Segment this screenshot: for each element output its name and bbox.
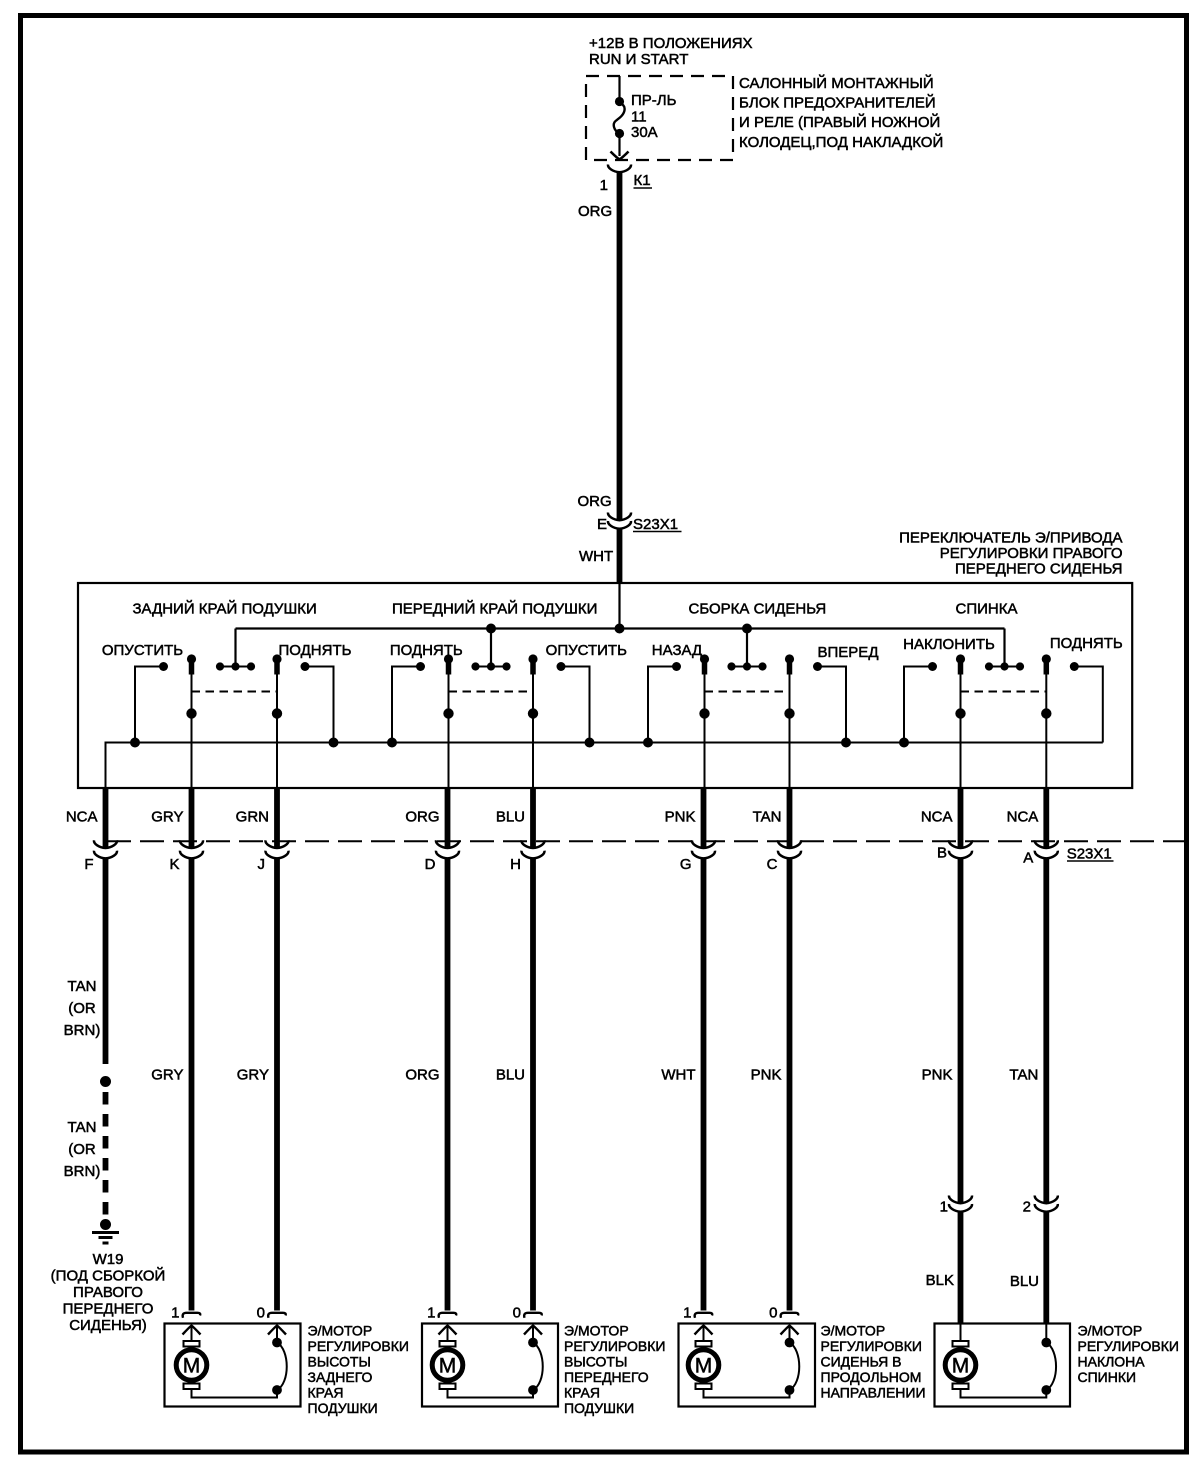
svg-text:(OR: (OR: [68, 1141, 96, 1158]
svg-text:СПИНКИ: СПИНКИ: [1078, 1369, 1137, 1385]
svg-text:M: M: [695, 1355, 713, 1378]
svg-text:СИДЕНЬЯ В: СИДЕНЬЯ В: [821, 1353, 902, 1369]
svg-text:M: M: [439, 1355, 457, 1378]
svg-text:ORG: ORG: [405, 1067, 439, 1084]
svg-text:К1: К1: [634, 172, 651, 189]
svg-text:СБОРКА СИДЕНЬЯ: СБОРКА СИДЕНЬЯ: [689, 601, 827, 618]
svg-text:ОПУСТИТЬ: ОПУСТИТЬ: [102, 642, 183, 659]
svg-text:Э/МОТОР: Э/МОТОР: [1078, 1322, 1143, 1338]
svg-text:NCA: NCA: [921, 809, 953, 826]
svg-text:ПРОДОЛЬНОМ: ПРОДОЛЬНОМ: [821, 1369, 922, 1385]
svg-text:NCA: NCA: [66, 809, 98, 826]
svg-text:ПОДУШКИ: ПОДУШКИ: [308, 1400, 378, 1416]
svg-text:K: K: [169, 856, 179, 873]
svg-text:11: 11: [631, 109, 647, 126]
svg-text:ЗАДНИЙ КРАЙ ПОДУШКИ: ЗАДНИЙ КРАЙ ПОДУШКИ: [133, 600, 317, 618]
svg-text:H: H: [510, 856, 521, 873]
svg-text:САЛОННЫЙ МОНТАЖНЫЙ: САЛОННЫЙ МОНТАЖНЫЙ: [739, 74, 934, 92]
svg-text:BLU: BLU: [1010, 1273, 1039, 1290]
svg-text:E: E: [597, 516, 607, 533]
svg-text:(ПОД СБОРКОЙ: (ПОД СБОРКОЙ: [51, 1267, 166, 1285]
svg-text:РЕГУЛИРОВКИ: РЕГУЛИРОВКИ: [564, 1338, 665, 1354]
svg-text:ОПУСТИТЬ: ОПУСТИТЬ: [546, 642, 627, 659]
svg-text:ВПЕРЕД: ВПЕРЕД: [818, 644, 879, 661]
svg-text:S23X1: S23X1: [633, 516, 678, 533]
svg-text:A: A: [1023, 850, 1033, 867]
svg-text:ПОДНЯТЬ: ПОДНЯТЬ: [1050, 635, 1123, 652]
svg-text:B: B: [937, 845, 947, 862]
svg-text:BRN): BRN): [64, 1163, 101, 1180]
svg-text:Э/МОТОР: Э/МОТОР: [821, 1322, 886, 1338]
svg-text:C: C: [767, 856, 778, 873]
svg-text:НАКЛОНИТЬ: НАКЛОНИТЬ: [903, 636, 995, 653]
svg-text:WHT: WHT: [579, 548, 613, 565]
svg-text:GRY: GRY: [151, 809, 183, 826]
svg-text:1: 1: [427, 1305, 435, 1322]
svg-text:ПРАВОГО: ПРАВОГО: [73, 1284, 143, 1301]
svg-text:TAN: TAN: [1009, 1067, 1038, 1084]
svg-text:NCA: NCA: [1007, 809, 1039, 826]
svg-text:TAN: TAN: [68, 978, 97, 995]
svg-text:+12В В ПОЛОЖЕНИЯХ: +12В В ПОЛОЖЕНИЯХ: [589, 35, 753, 52]
svg-text:БЛОК ПРЕДОХРАНИТЕЛЕЙ: БЛОК ПРЕДОХРАНИТЕЛЕЙ: [739, 94, 936, 112]
svg-text:WHT: WHT: [661, 1067, 695, 1084]
svg-text:BRN): BRN): [64, 1022, 101, 1039]
svg-text:0: 0: [257, 1305, 265, 1322]
svg-text:1: 1: [600, 177, 608, 194]
svg-text:РЕГУЛИРОВКИ: РЕГУЛИРОВКИ: [1078, 1338, 1179, 1354]
svg-text:J: J: [258, 856, 266, 873]
svg-text:D: D: [425, 856, 436, 873]
svg-text:И РЕЛЕ (ПРАВЫЙ НОЖНОЙ: И РЕЛЕ (ПРАВЫЙ НОЖНОЙ: [739, 113, 940, 131]
svg-text:1: 1: [171, 1305, 179, 1322]
svg-text:СИДЕНЬЯ): СИДЕНЬЯ): [69, 1317, 147, 1334]
svg-text:1: 1: [683, 1305, 691, 1322]
svg-text:ORG: ORG: [578, 493, 612, 510]
svg-text:НАКЛОНА: НАКЛОНА: [1078, 1353, 1146, 1369]
svg-text:ПЕРЕДНЕГО: ПЕРЕДНЕГО: [63, 1301, 154, 1318]
svg-text:ВЫСОТЫ: ВЫСОТЫ: [308, 1353, 371, 1369]
svg-text:ПОДУШКИ: ПОДУШКИ: [564, 1400, 634, 1416]
svg-text:ВЫСОТЫ: ВЫСОТЫ: [564, 1353, 627, 1369]
svg-text:S23X1: S23X1: [1067, 846, 1112, 863]
svg-text:M: M: [952, 1355, 970, 1378]
svg-text:F: F: [84, 856, 93, 873]
svg-text:ПЕРЕДНИЙ КРАЙ ПОДУШКИ: ПЕРЕДНИЙ КРАЙ ПОДУШКИ: [392, 600, 597, 618]
svg-text:RUN И START: RUN И START: [589, 51, 688, 68]
svg-text:Э/МОТОР: Э/МОТОР: [308, 1322, 373, 1338]
svg-text:GRY: GRY: [151, 1067, 183, 1084]
svg-text:ORG: ORG: [405, 809, 439, 826]
svg-text:BLK: BLK: [926, 1272, 954, 1289]
svg-text:TAN: TAN: [753, 809, 782, 826]
svg-text:КРАЯ: КРАЯ: [564, 1384, 600, 1400]
svg-text:GRN: GRN: [236, 809, 269, 826]
svg-text:ПЕРЕДНЕГО: ПЕРЕДНЕГО: [564, 1369, 649, 1385]
svg-text:ПЕРЕДНЕГО СИДЕНЬЯ: ПЕРЕДНЕГО СИДЕНЬЯ: [955, 561, 1123, 578]
svg-text:Э/МОТОР: Э/МОТОР: [564, 1322, 629, 1338]
svg-text:30А: 30А: [631, 124, 658, 141]
svg-text:M: M: [183, 1355, 201, 1378]
svg-text:0: 0: [769, 1305, 777, 1322]
svg-text:РЕГУЛИРОВКИ: РЕГУЛИРОВКИ: [308, 1338, 409, 1354]
svg-text:ПЕРЕКЛЮЧАТЕЛЬ Э/ПРИВОДА: ПЕРЕКЛЮЧАТЕЛЬ Э/ПРИВОДА: [899, 530, 1122, 547]
svg-text:СПИНКА: СПИНКА: [956, 601, 1018, 618]
svg-text:GRY: GRY: [237, 1067, 269, 1084]
svg-text:РЕГУЛИРОВКИ ПРАВОГО: РЕГУЛИРОВКИ ПРАВОГО: [940, 545, 1123, 562]
svg-text:КРАЯ: КРАЯ: [308, 1384, 344, 1400]
svg-text:G: G: [680, 856, 692, 873]
svg-text:2: 2: [1023, 1199, 1031, 1216]
svg-text:0: 0: [513, 1305, 521, 1322]
svg-text:BLU: BLU: [496, 1067, 525, 1084]
svg-text:НАПРАВЛЕНИИ: НАПРАВЛЕНИИ: [821, 1384, 926, 1400]
svg-text:BLU: BLU: [496, 809, 525, 826]
svg-text:РЕГУЛИРОВКИ: РЕГУЛИРОВКИ: [821, 1338, 922, 1354]
svg-text:ЗАДНЕГО: ЗАДНЕГО: [308, 1369, 373, 1385]
svg-text:W19: W19: [93, 1251, 124, 1268]
svg-text:ПОДНЯТЬ: ПОДНЯТЬ: [279, 642, 352, 659]
svg-text:НАЗАД: НАЗАД: [652, 642, 702, 659]
svg-text:PNK: PNK: [922, 1067, 953, 1084]
svg-text:PNK: PNK: [751, 1067, 782, 1084]
svg-text:(OR: (OR: [68, 1000, 96, 1017]
svg-text:КОЛОДЕЦ,ПОД НАКЛАДКОЙ: КОЛОДЕЦ,ПОД НАКЛАДКОЙ: [739, 133, 943, 151]
svg-text:ПР-ЛЬ: ПР-ЛЬ: [631, 92, 677, 109]
svg-text:ORG: ORG: [578, 203, 612, 220]
svg-text:PNK: PNK: [665, 809, 696, 826]
svg-text:1: 1: [940, 1199, 948, 1216]
svg-text:TAN: TAN: [68, 1119, 97, 1136]
